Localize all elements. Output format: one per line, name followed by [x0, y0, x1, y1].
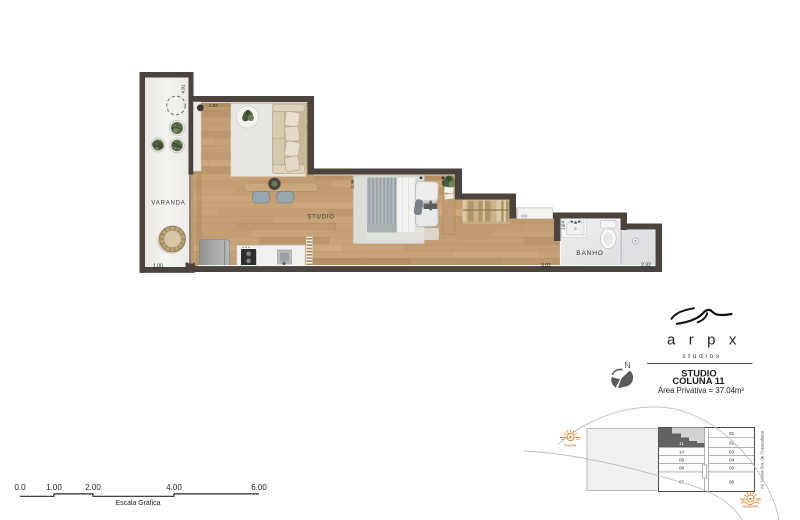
svg-text:2.00: 2.00 [85, 483, 101, 492]
svg-text:10: 10 [679, 449, 685, 454]
svg-text:03: 03 [729, 449, 735, 454]
svg-text:STUDIO: STUDIO [307, 214, 334, 220]
svg-text:08: 08 [679, 466, 685, 471]
svg-text:04: 04 [729, 458, 735, 463]
svg-text:4.00: 4.00 [166, 483, 182, 492]
svg-text:01: 01 [729, 431, 735, 436]
svg-text:Área Privativa = 37.04m²: Área Privativa = 37.04m² [658, 386, 744, 395]
svg-text:BANHO: BANHO [576, 250, 603, 257]
svg-text:4.91: 4.91 [181, 84, 186, 93]
svg-text:1.24: 1.24 [561, 221, 566, 230]
svg-text:COLUNA 11: COLUNA 11 [672, 375, 724, 386]
svg-text:a r p x: a r p x [667, 332, 741, 349]
svg-text:1.00: 1.00 [46, 483, 62, 492]
svg-text:6.00: 6.00 [251, 483, 267, 492]
svg-text:06: 06 [729, 480, 735, 485]
svg-text:05: 05 [729, 466, 735, 471]
svg-text:09: 09 [679, 458, 685, 463]
svg-text:1.00: 1.00 [153, 263, 163, 269]
svg-text:9.02: 9.02 [541, 263, 551, 269]
svg-text:Poente: Poente [564, 444, 576, 448]
svg-text:N: N [624, 360, 630, 370]
svg-text:11: 11 [679, 441, 684, 446]
svg-text:VARANDA: VARANDA [151, 201, 185, 207]
svg-text:2.83: 2.83 [209, 103, 218, 108]
svg-text:2.36: 2.36 [350, 179, 355, 188]
svg-text:2.32: 2.32 [641, 262, 651, 268]
svg-text:Escala Gráfica: Escala Gráfica [116, 500, 161, 507]
svg-text:0.0: 0.0 [14, 483, 26, 492]
svg-text:s t u d i o s: s t u d i o s [682, 353, 719, 360]
